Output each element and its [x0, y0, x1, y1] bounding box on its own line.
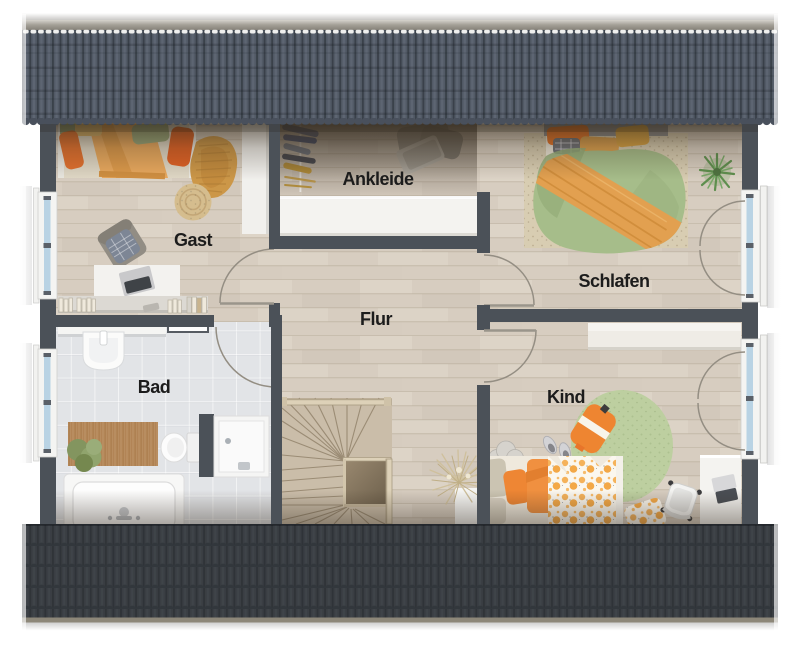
svg-text:Gast: Gast	[174, 230, 213, 250]
svg-text:Ankleide: Ankleide	[342, 169, 414, 189]
svg-text:Bad: Bad	[138, 377, 171, 397]
svg-text:Flur: Flur	[360, 309, 392, 329]
svg-text:Kind: Kind	[547, 387, 585, 407]
svg-text:Schlafen: Schlafen	[578, 271, 649, 291]
